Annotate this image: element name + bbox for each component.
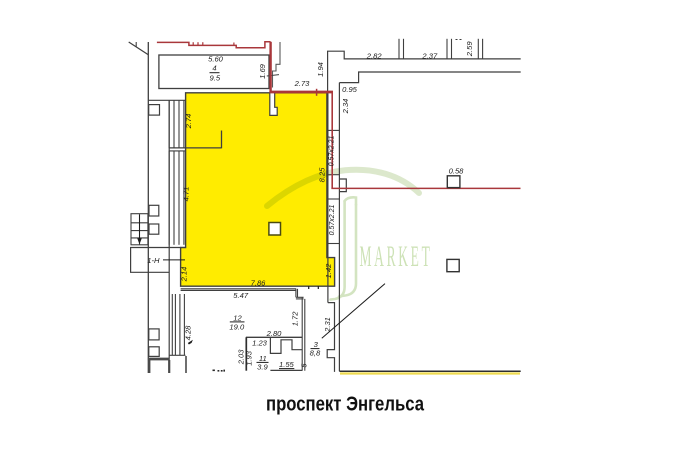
svg-text:1.69: 1.69 xyxy=(258,63,267,79)
svg-text:1.23: 1.23 xyxy=(252,338,268,347)
svg-text:MARKET: MARKET xyxy=(360,240,433,273)
svg-text:1.42: 1.42 xyxy=(324,263,333,279)
svg-text:4.71: 4.71 xyxy=(182,187,191,202)
svg-text:2.82: 2.82 xyxy=(366,52,383,61)
svg-text:0.57х2.21: 0.57х2.21 xyxy=(329,136,336,167)
svg-text:2.73: 2.73 xyxy=(294,79,311,88)
svg-text:1.93: 1.93 xyxy=(245,350,254,366)
svg-text:1.94: 1.94 xyxy=(316,62,325,77)
svg-text:4.28: 4.28 xyxy=(184,325,193,341)
svg-text:2.14: 2.14 xyxy=(180,267,189,283)
svg-text:12: 12 xyxy=(233,314,242,323)
svg-text:1.55: 1.55 xyxy=(279,360,295,369)
svg-text:2.37: 2.37 xyxy=(421,51,438,60)
svg-text:1-Н: 1-Н xyxy=(147,256,160,265)
svg-text:5.60: 5.60 xyxy=(208,54,224,63)
svg-text:8.25: 8.25 xyxy=(318,167,327,183)
svg-text:2.74: 2.74 xyxy=(184,114,193,130)
svg-text:9.5: 9.5 xyxy=(210,73,221,82)
svg-text:5: 5 xyxy=(302,363,309,367)
svg-text:0.57х2.21: 0.57х2.21 xyxy=(329,205,336,236)
svg-text:проспект Энгельса: проспект Энгельса xyxy=(266,394,425,416)
svg-text:7.86: 7.86 xyxy=(251,279,267,288)
svg-text:2.31: 2.31 xyxy=(323,317,332,333)
svg-text:0.95: 0.95 xyxy=(342,85,358,94)
svg-text:0.58: 0.58 xyxy=(449,167,465,176)
svg-text:2.59: 2.59 xyxy=(465,41,474,58)
svg-text:2.80: 2.80 xyxy=(266,329,283,338)
svg-text:8,8: 8,8 xyxy=(310,349,321,358)
svg-text:2.34: 2.34 xyxy=(341,99,350,115)
svg-text:1.72: 1.72 xyxy=(291,311,300,327)
svg-text:5.47: 5.47 xyxy=(233,291,249,300)
svg-text:4: 4 xyxy=(212,64,216,73)
svg-text:19.0: 19.0 xyxy=(229,323,245,332)
svg-text:3.9: 3.9 xyxy=(257,363,268,372)
